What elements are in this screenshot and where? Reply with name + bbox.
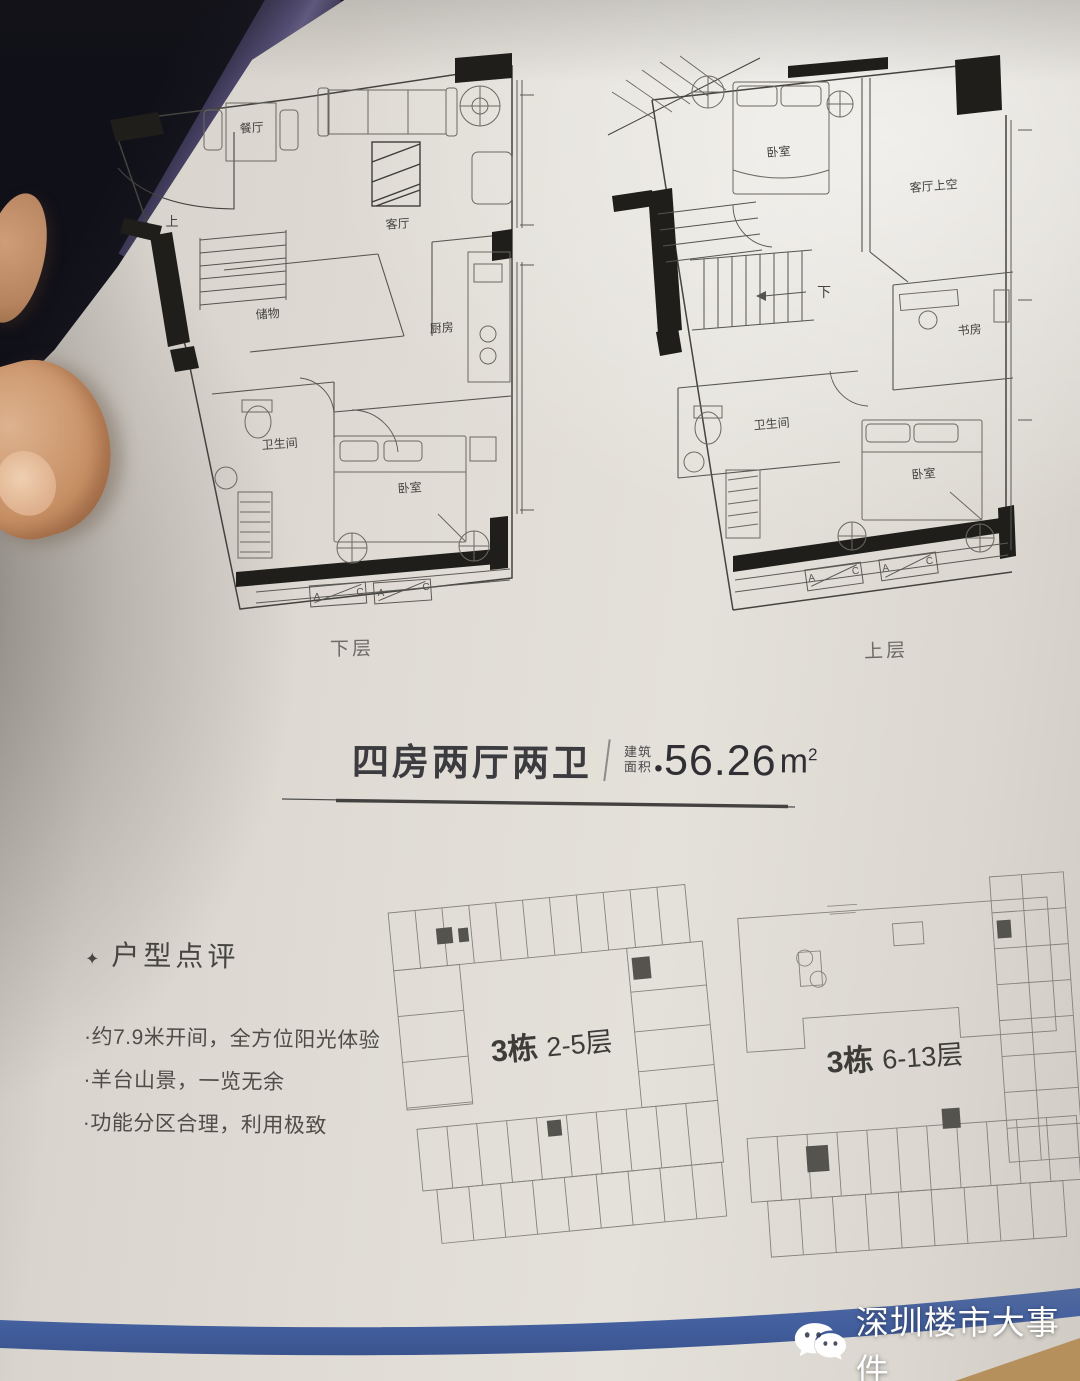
watermark: 深圳楼市大事件: [794, 1296, 1080, 1381]
thumb-nail: [0, 441, 66, 525]
watermark-text: 深圳楼市大事件: [856, 1296, 1080, 1381]
wechat-icon: [794, 1320, 847, 1368]
brochure-photo: 餐厅 客厅 厨房 储物 卫生间 卧室 上 A C A C: [0, 0, 1080, 1381]
bottom-decor: [0, 0, 1080, 1381]
